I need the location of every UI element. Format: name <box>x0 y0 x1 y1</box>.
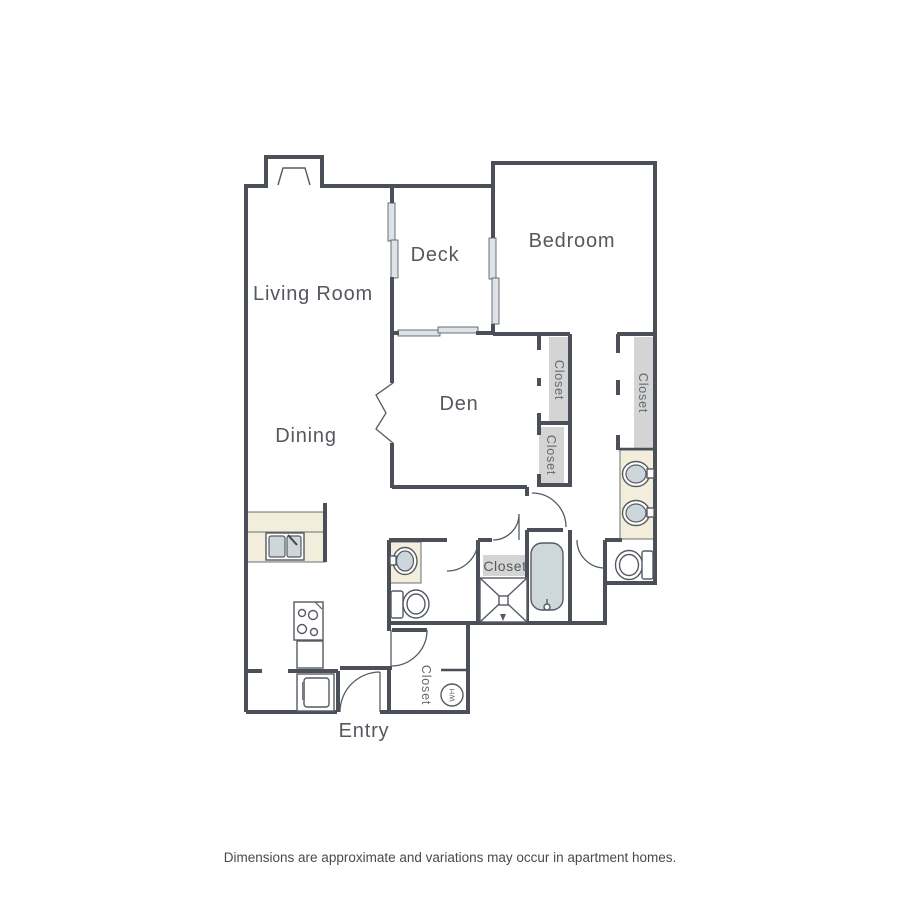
den-closet-upper-label: Closet <box>552 360 566 400</box>
den-french-doors <box>376 383 393 443</box>
master-sink-1-faucet <box>647 469 654 478</box>
window-deck-bedroom-2 <box>492 278 499 324</box>
window-deck-den-2 <box>438 327 478 333</box>
window-living-deck-1 <box>388 203 395 241</box>
windows <box>388 203 499 336</box>
master-sink-2-faucet <box>647 508 654 517</box>
shower-drain <box>499 596 508 605</box>
room-label-dining: Dining <box>275 425 337 447</box>
room-label-deck: Deck <box>411 244 460 266</box>
doors <box>340 383 605 712</box>
kitchen-sink-bowl-right <box>287 536 301 557</box>
oven <box>297 641 323 668</box>
water-heater-label: WH <box>448 688 457 701</box>
kitchen-sink-bowl-left <box>269 536 285 557</box>
room-label-living-room: Living Room <box>253 283 373 305</box>
corridor-door <box>532 493 566 527</box>
burner-3 <box>298 625 307 634</box>
room-label-entry: Entry <box>339 720 390 742</box>
den-closet-lower-label: Closet <box>544 435 558 475</box>
master-toilet-tank <box>642 551 653 579</box>
hall-closet-label: Closet <box>483 558 526 574</box>
counters <box>246 450 654 583</box>
floor-plan-drawing: WH Living Room Dining Deck Bedroom Den E… <box>0 0 900 900</box>
hall-bath-door <box>447 540 478 571</box>
window-living-deck-2 <box>391 240 398 278</box>
burner-1 <box>299 610 306 617</box>
burner-2 <box>309 611 318 620</box>
master-sink-1-bowl <box>626 465 646 483</box>
master-sink-2-bowl <box>626 504 646 522</box>
hall-sink-bowl <box>397 551 414 571</box>
window-deck-bedroom-1 <box>489 238 496 279</box>
master-bath-door <box>577 540 605 568</box>
hall-toilet-tank <box>391 591 403 618</box>
fireplace <box>278 168 310 185</box>
entry-closet-door <box>391 630 427 666</box>
entry-door <box>340 672 380 712</box>
entry-closet-label: Closet <box>419 665 433 705</box>
floor-plan-page: WH Living Room Dining Deck Bedroom Den E… <box>0 0 900 900</box>
room-label-den: Den <box>439 393 478 415</box>
stove <box>294 602 323 640</box>
bedroom-closet-label: Closet <box>636 373 650 413</box>
refrigerator-handle <box>302 682 305 700</box>
room-label-bedroom: Bedroom <box>529 230 616 252</box>
disclaimer-text: Dimensions are approximate and variation… <box>224 850 676 865</box>
hallway-door <box>493 514 519 540</box>
refrigerator-door <box>304 678 329 707</box>
bathtub-faucet <box>544 604 550 610</box>
hall-sink-faucet <box>390 556 396 565</box>
window-deck-den-1 <box>398 330 440 336</box>
burner-4 <box>311 629 318 636</box>
